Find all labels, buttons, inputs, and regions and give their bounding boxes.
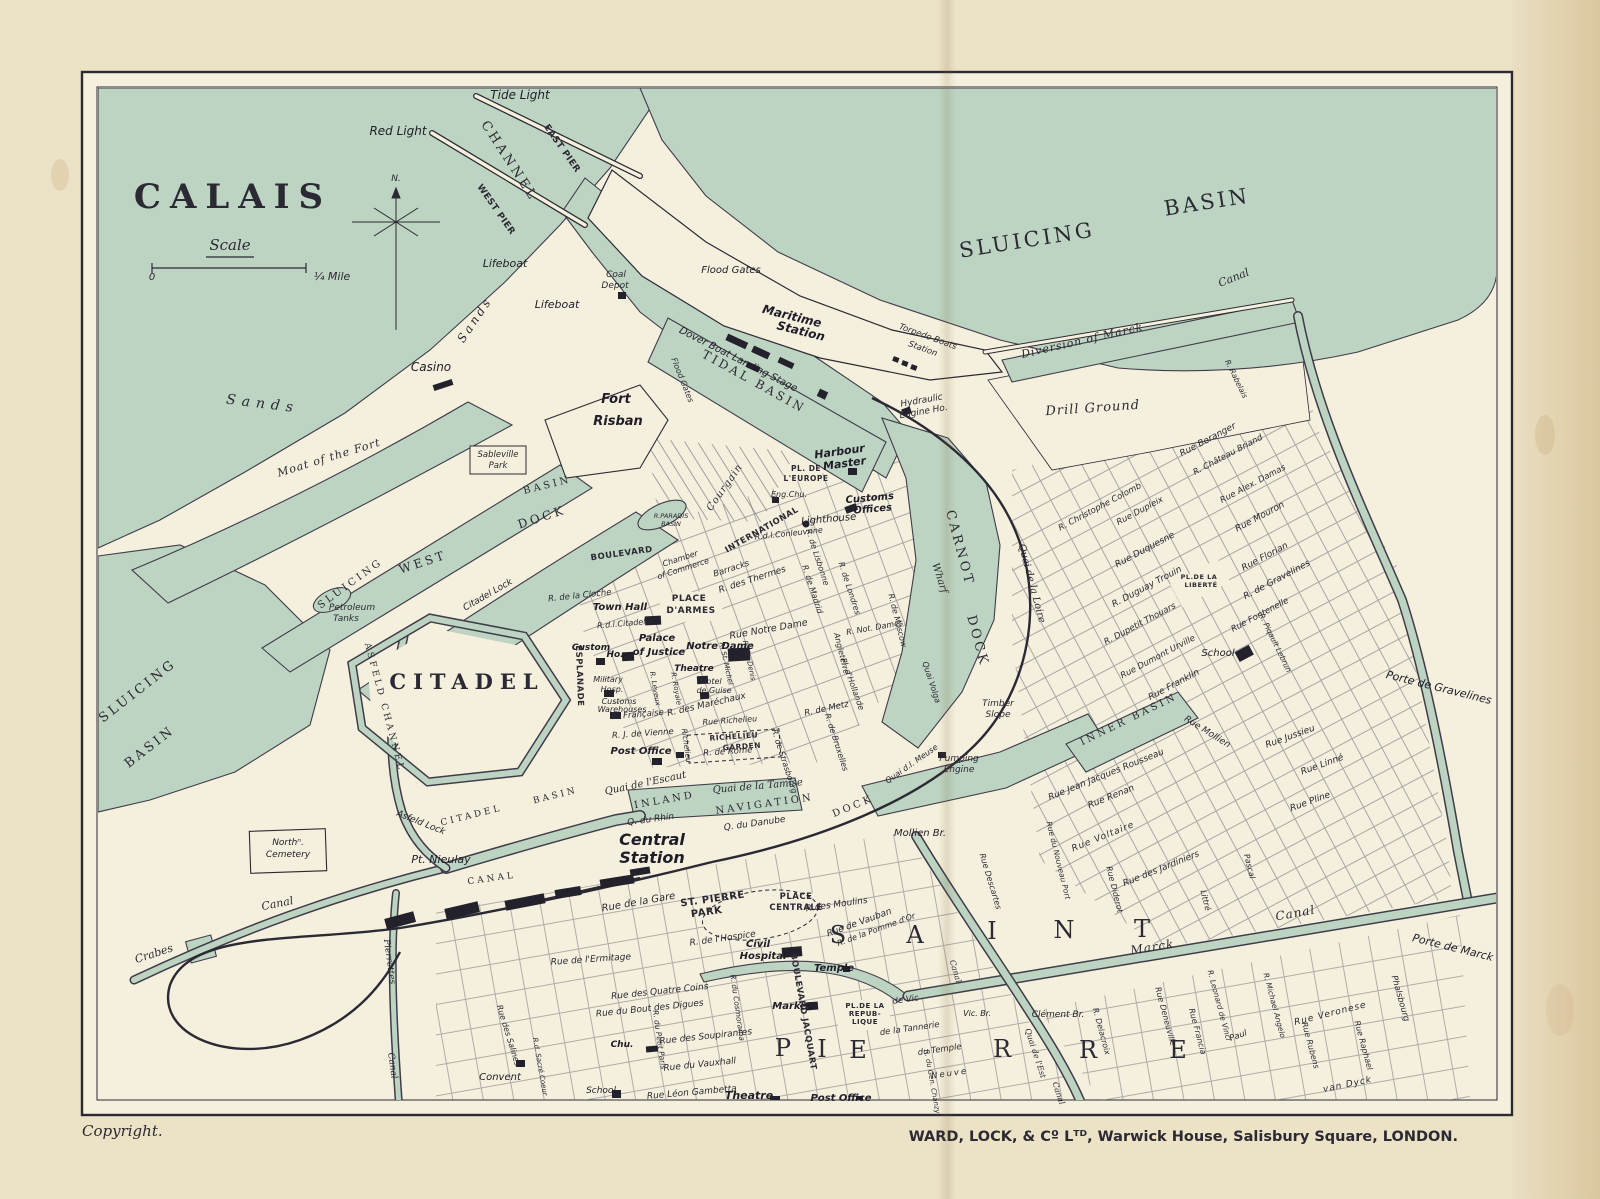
map-label: Scale xyxy=(209,236,250,254)
map-label: Copyright. xyxy=(82,1122,163,1140)
map-label: School xyxy=(586,1086,616,1096)
map-label: Flood Gates xyxy=(701,265,760,276)
map-label: Palace xyxy=(639,633,676,644)
map-label: T xyxy=(1134,915,1150,943)
map-label: Risban xyxy=(593,414,643,429)
map-label: Vic. Br. xyxy=(963,1009,991,1018)
map-label: I xyxy=(987,917,996,945)
map-label: Red Light xyxy=(369,124,427,138)
map-label: PL. DE xyxy=(791,464,821,473)
map-label: S xyxy=(830,921,846,949)
map-label: Fort xyxy=(601,392,631,407)
map-label: Eng.Chu. xyxy=(771,490,807,499)
map-label: I xyxy=(817,1035,826,1063)
map-label: Station xyxy=(619,848,684,867)
map-label: ¼ Mile xyxy=(314,270,351,283)
map-label: Temple xyxy=(814,963,854,974)
map-canvas: CALAISScale0¼ MileN.Tide LightRed LightC… xyxy=(0,0,1600,1199)
map-label: A xyxy=(905,921,924,949)
map-label: Post Office xyxy=(810,1093,871,1104)
map-label: LIBERTÉ xyxy=(1184,580,1217,589)
map-label: Hosp. xyxy=(601,685,624,694)
map-label: de Guise xyxy=(696,686,731,695)
map-label: ESPLANADE xyxy=(573,645,585,707)
map-label: Civil xyxy=(746,939,771,950)
map-label: Chu. xyxy=(611,1040,634,1050)
map-label: Hotel xyxy=(700,677,722,686)
map-label: R xyxy=(1079,1036,1098,1064)
map-label: 0 xyxy=(149,272,155,283)
map-label: Petroleum xyxy=(329,603,375,613)
map-label: Casino xyxy=(411,360,451,374)
map-label: CITADEL xyxy=(389,669,544,694)
map-label: BASIN xyxy=(661,520,681,528)
map-label: Theatre xyxy=(674,664,714,674)
map-label: P xyxy=(775,1034,791,1062)
map-label: Lifeboat xyxy=(483,257,528,270)
map-label: School xyxy=(1201,648,1234,659)
map-label: Military xyxy=(593,675,623,684)
map-label: PL.DE LA xyxy=(1181,573,1218,581)
map-label: Theatre xyxy=(725,1089,774,1102)
map-label: of Justice xyxy=(633,647,686,658)
map-label: Hospital xyxy=(740,951,787,962)
map-label: Tanks xyxy=(333,614,359,624)
map-label: Depot xyxy=(601,281,629,291)
map-label: Post Office xyxy=(610,746,671,757)
map-label: PLACE xyxy=(780,892,813,902)
map-label: Central xyxy=(619,830,685,849)
map-label: WARD, LOCK, & Cº Lᵀᴰ, Warwick House, Sal… xyxy=(909,1129,1458,1145)
map-label: Town Hall xyxy=(593,602,648,613)
map-label: N xyxy=(1054,916,1075,944)
map-label: Coal xyxy=(606,270,626,280)
map-label: E xyxy=(849,1036,867,1064)
map-label: Ho. xyxy=(606,650,623,660)
map-label: Convent xyxy=(479,1072,522,1083)
map-label: Timber xyxy=(982,699,1015,709)
map-label: R.PARADIS xyxy=(654,512,689,520)
map-label: Northⁿ. xyxy=(272,838,304,848)
map-label: L'EUROPE xyxy=(783,474,828,483)
map-label: R xyxy=(993,1035,1012,1063)
map-label: LIQUE xyxy=(852,1018,878,1026)
map-label: Lifeboat xyxy=(535,298,580,311)
map-label: N. xyxy=(391,174,401,184)
map-label: Cemetery xyxy=(266,850,311,860)
map-page: CALAISScale0¼ MileN.Tide LightRed LightC… xyxy=(0,0,1600,1199)
map-label: Tide Light xyxy=(490,88,551,102)
map-label: Clément Br. xyxy=(1032,1009,1085,1020)
map-label: Pt. Nieulay xyxy=(411,853,471,866)
map-label: CALAIS xyxy=(134,177,332,217)
map-label: PL.DE LA xyxy=(845,1002,884,1010)
map-label: Slope xyxy=(986,710,1011,720)
map-label: Sableville xyxy=(478,450,519,460)
map-label: REPUB- xyxy=(849,1010,881,1018)
map-label: PLACE xyxy=(672,594,707,604)
map-label: D'ARMES xyxy=(666,606,715,616)
map-label: Park xyxy=(489,461,509,471)
